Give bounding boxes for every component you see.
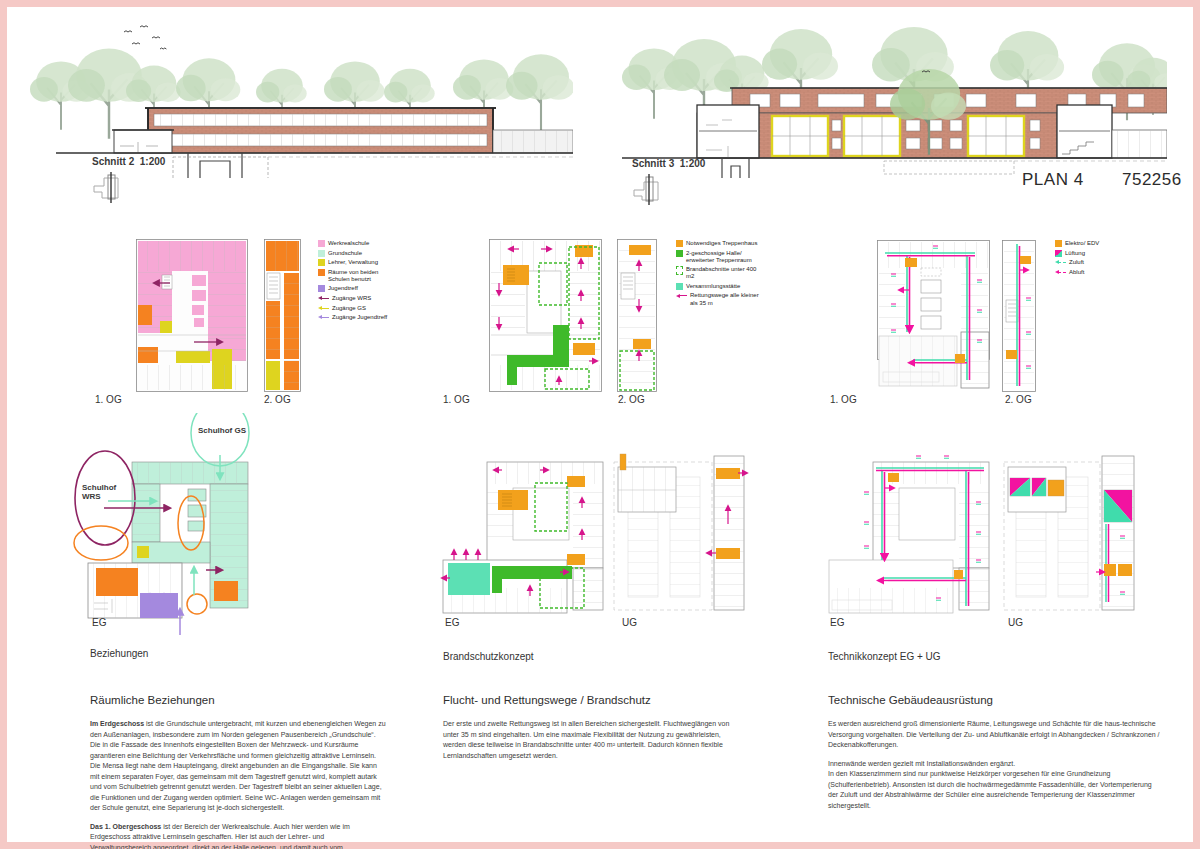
legend-item-jugendtreff: Jugendtreff [318, 285, 400, 292]
plan-beziehungen-2og [264, 239, 301, 392]
floor-label-g1-2og: 2. OG [264, 394, 291, 405]
floor-label-g2-ug: UG [622, 617, 637, 628]
floor-label-g2-2og: 2. OG [618, 394, 645, 405]
swatch-split-lueftung [1055, 250, 1062, 257]
text-title: Räumliche Beziehungen [90, 692, 386, 709]
birds-icon [124, 26, 166, 49]
group-title-brandschutz: Brandschutzkonzept [443, 651, 534, 662]
plan-title: PLAN 4 [1022, 170, 1084, 190]
legend-item-zugaenge-jugendtreff: Zugänge Jugendtreff [318, 314, 400, 321]
dashed-arrow-icon [1055, 259, 1066, 266]
floor-label-g3-1og: 1. OG [830, 394, 857, 405]
floor-label-g2-1og: 1. OG [443, 394, 470, 405]
legend-item-rettungswege: Rettungswege alle kleiner als 35 m [676, 292, 762, 306]
paragraph: Innenwände werden gezielt mit Installati… [828, 759, 1162, 770]
legend-item-abluft: Abluft [1055, 269, 1099, 276]
paragraph: Im Erdgeschoss ist die Grundschule unter… [90, 719, 386, 814]
swatch-yellow [318, 259, 325, 266]
floor-label-g1-eg: EG [92, 617, 106, 628]
legend-brandschutz: Notwendiges Treppenhaus 2-geschossige Ha… [676, 240, 762, 307]
legend-item-grundschule: Grundschule [318, 250, 400, 257]
annotation-schulhof-wrs: Schulhof WRS [82, 483, 126, 501]
text-title: Technische Gebäudeausrüstung [828, 692, 1162, 709]
plan-beziehungen-eg [60, 413, 260, 638]
swatch-pink [318, 240, 325, 247]
section-2-keyplan-icon [90, 172, 126, 204]
swatch-orange-amber [676, 240, 683, 247]
plan-brandschutz-eg [440, 448, 615, 620]
legend-item-versammlung: Versammlungsstätte [676, 283, 762, 290]
legend-item-brandabschnitte: Brandabschnitte unter 400 m2 [676, 266, 762, 280]
paragraph: Der erste und zweite Rettungsweg ist in … [443, 719, 745, 761]
section-2-drawing [28, 18, 573, 178]
arrow-icon [676, 292, 687, 299]
legend-technik: Elektro/ EDV Lüftung Zuluft Abluft [1055, 240, 1099, 276]
section-3-label: Schnitt 3 1:200 [632, 158, 705, 169]
floor-label-g2-eg: EG [445, 617, 459, 628]
section-3-keyplan-icon [630, 174, 666, 206]
arrow-icon [318, 305, 329, 312]
plan-brandschutz-2og [617, 239, 657, 392]
swatch-dashed-green [676, 266, 683, 275]
legend-item-werkrealschule: Werkrealschule [318, 240, 400, 247]
swatch-green [676, 250, 683, 257]
text-title: Flucht- und Rettungswege / Brandschutz [443, 692, 745, 709]
competition-board-page: { "board": { "plan_label": "PLAN 4", "pl… [0, 0, 1200, 849]
swatch-purple [318, 285, 325, 292]
dashed-arrow-icon [1055, 269, 1066, 276]
group-title-technik: Technikkonzept EG + UG [828, 651, 941, 662]
legend-item-zugaenge-wrs: Zugänge WRS [318, 295, 400, 302]
legend-item-zuluft: Zuluft [1055, 259, 1099, 266]
swatch-orange-amber [1055, 240, 1062, 247]
plan-brandschutz-ug [610, 452, 750, 620]
text-column-flucht-rettungswege: Flucht- und Rettungswege / Brandschutz D… [443, 692, 745, 769]
swatch-mint [318, 250, 325, 257]
plan-technik-ug [1000, 452, 1140, 620]
section-3-drawing [622, 10, 1167, 178]
floor-label-g3-eg: EG [830, 617, 844, 628]
arrow-icon [318, 295, 329, 302]
legend-beziehungen: Werkrealschule Grundschule Lehrer, Verwa… [318, 240, 400, 321]
paragraph: Das 1. Obergeschoss ist der Bereich der … [90, 822, 386, 849]
plan-beziehungen-1og [136, 239, 248, 392]
paragraph: In den Klassenzimmern sind nur punktweis… [828, 769, 1162, 811]
annotation-schulhof-gs: Schulhof GS [198, 426, 268, 435]
plan-technik-1og [877, 240, 990, 392]
plan-brandschutz-1og [489, 239, 602, 392]
plan-number: 752256 [1122, 170, 1182, 190]
floor-label-g3-2og: 2. OG [1005, 394, 1032, 405]
paragraph: Es werden ausreichend groß dimensioniert… [828, 719, 1162, 751]
arrow-icon [318, 314, 329, 321]
legend-item-elektro: Elektro/ EDV [1055, 240, 1099, 247]
legend-item-halle: 2-geschossige Halle/ erweiterter Treppen… [676, 250, 762, 264]
text-column-raeumliche-beziehungen: Räumliche Beziehungen Im Erdgeschoss ist… [90, 692, 386, 849]
legend-item-treppenhaus: Notwendiges Treppenhaus [676, 240, 762, 247]
floor-label-g3-ug: UG [1008, 617, 1023, 628]
legend-item-lueftung: Lüftung [1055, 250, 1099, 257]
legend-item-raeume: Räume von beiden Schulen benutzt [318, 269, 400, 283]
swatch-mint-bright [676, 283, 683, 290]
section-2-label: Schnitt 2 1:200 [92, 156, 165, 167]
text-column-gebaeudeausruestung: Technische Gebäudeausrüstung Es werden a… [828, 692, 1162, 819]
legend-item-lehrer: Lehrer, Verwaltung [318, 259, 400, 266]
plan-technik-2og [1002, 240, 1036, 392]
plan-technik-eg [826, 448, 1001, 620]
floor-label-g1-1og: 1. OG [95, 394, 122, 405]
legend-item-zugaenge-gs: Zugänge GS [318, 305, 400, 312]
swatch-orange [318, 269, 325, 276]
group-title-beziehungen: Beziehungen [90, 648, 148, 659]
